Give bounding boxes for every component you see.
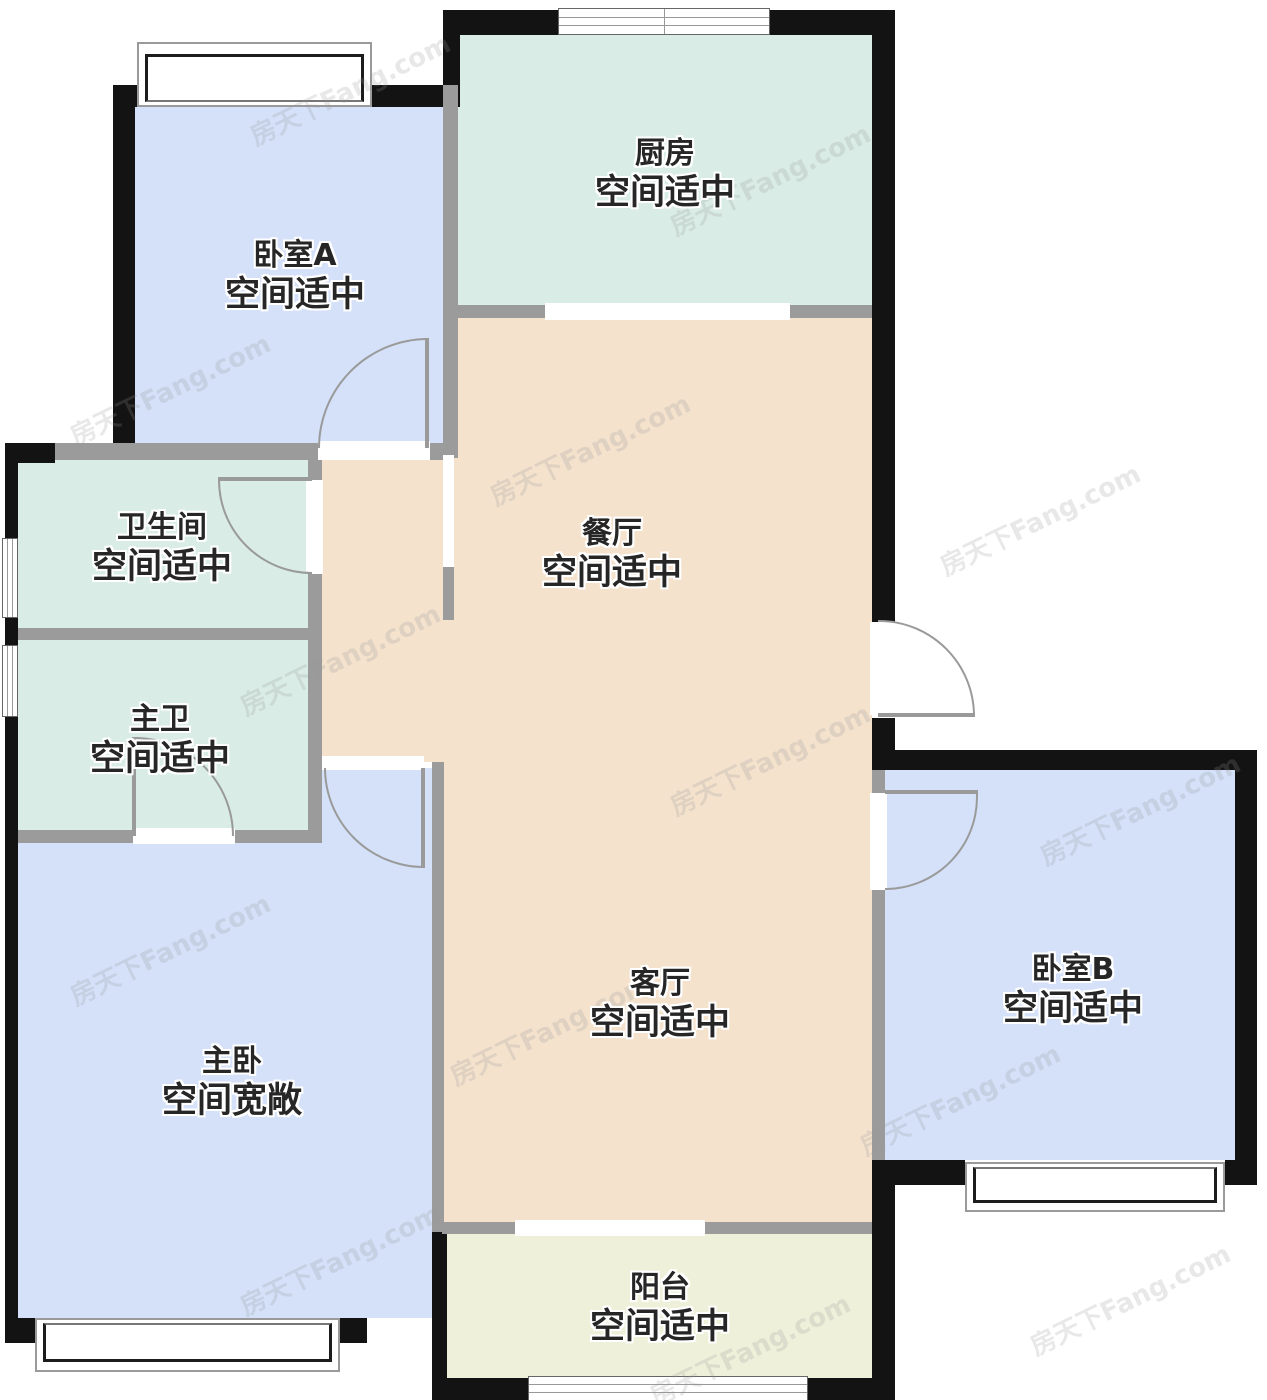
wall-segment <box>432 1230 447 1400</box>
room-status: 空间适中 <box>535 1306 785 1348</box>
room-name: 卫生间 <box>37 510 287 546</box>
room-label-master-bath: 主卫 空间适中 <box>35 702 285 780</box>
opening-kitchen <box>545 303 790 320</box>
window-frame-line <box>7 646 8 716</box>
wall-segment <box>113 85 135 458</box>
window-bathroom-left <box>2 538 18 618</box>
room-name: 餐厅 <box>487 516 737 552</box>
room-label-kitchen: 厨房 空间适中 <box>540 136 790 214</box>
watermark: 房天下Fang.com <box>1023 1234 1236 1363</box>
watermark: 房天下Fang.com <box>933 454 1146 583</box>
door-leaf-bathroom <box>218 477 312 481</box>
wall-segment <box>432 762 444 1232</box>
room-name: 主卫 <box>35 702 285 738</box>
room-status: 空间适中 <box>35 738 285 780</box>
window-frame-line <box>12 646 13 716</box>
door-arc-entrance <box>878 620 975 716</box>
wall-segment <box>18 628 308 640</box>
door-leaf-entrance <box>878 713 975 717</box>
room-label-balcony: 阳台 空间适中 <box>535 1270 785 1348</box>
bay-window-master-bedroom <box>35 1318 340 1372</box>
wall-segment <box>340 1318 367 1343</box>
wall-segment <box>443 567 454 620</box>
wall-segment <box>443 10 560 35</box>
window-frame-line <box>529 1384 807 1385</box>
room-status: 空间适中 <box>535 1002 785 1044</box>
wall-segment <box>5 717 18 1330</box>
wall-segment <box>5 443 18 538</box>
wall-segment <box>432 1378 528 1400</box>
opening-balcony <box>515 1220 705 1236</box>
door-leaf-bedroom-a <box>425 338 429 448</box>
window-master-bath-left <box>2 645 18 717</box>
room-label-dining: 餐厅 空间适中 <box>487 516 737 594</box>
room-name: 卧室A <box>170 238 420 274</box>
bay-window-bedroom-b <box>965 1162 1225 1212</box>
room-label-bathroom: 卫生间 空间适中 <box>37 510 287 588</box>
room-name: 客厅 <box>535 966 785 1002</box>
room-name: 厨房 <box>540 136 790 172</box>
room-name: 卧室B <box>948 952 1198 988</box>
wall-segment <box>443 10 460 85</box>
room-label-bedroom-b: 卧室B 空间适中 <box>948 952 1198 1030</box>
room-label-living: 客厅 空间适中 <box>535 966 785 1044</box>
room-dining-main <box>322 455 872 762</box>
door-leaf-master-bedroom <box>421 768 425 868</box>
wall-segment <box>885 1160 965 1185</box>
room-status: 空间适中 <box>948 988 1198 1030</box>
room-label-master-bedroom: 主卧 空间宽敞 <box>107 1044 357 1122</box>
wall-segment <box>808 1378 872 1400</box>
room-status: 空间适中 <box>487 552 737 594</box>
window-balcony <box>528 1376 808 1400</box>
door-leaf-bedroom-b <box>885 790 978 794</box>
floor-plan: 厨房 空间适中 卧室A 空间适中 卫生间 空间适中 主卫 空间适中 餐厅 空间适… <box>0 0 1267 1400</box>
bay-window-frame <box>145 54 364 102</box>
room-dining-upper <box>458 318 872 455</box>
bay-window-bedroom-a <box>137 42 372 107</box>
wall-segment <box>430 443 443 460</box>
room-label-bedroom-a: 卧室A 空间适中 <box>170 238 420 316</box>
wall-segment <box>5 618 18 645</box>
window-frame-line <box>664 9 665 34</box>
room-status: 空间宽敞 <box>107 1080 357 1122</box>
wall-segment <box>1235 750 1257 1185</box>
room-status: 空间适中 <box>170 274 420 316</box>
wall-segment <box>5 1318 35 1343</box>
room-status: 空间适中 <box>540 172 790 214</box>
wall-segment <box>55 443 318 460</box>
room-status: 空间适中 <box>37 546 287 588</box>
bay-window-frame <box>43 1323 332 1362</box>
window-frame-line <box>529 1392 807 1393</box>
room-name: 阳台 <box>535 1270 785 1306</box>
wall-segment <box>443 85 458 458</box>
window-frame-line <box>12 539 13 617</box>
wall-segment <box>1225 1160 1255 1185</box>
window-frame-line <box>7 539 8 617</box>
wall-segment <box>872 10 895 622</box>
opening-hall-stub <box>443 455 454 567</box>
wall-segment <box>872 750 1257 770</box>
window-kitchen <box>558 8 770 35</box>
bay-window-frame <box>973 1167 1217 1203</box>
wall-segment <box>872 1160 895 1400</box>
room-name: 主卧 <box>107 1044 357 1080</box>
